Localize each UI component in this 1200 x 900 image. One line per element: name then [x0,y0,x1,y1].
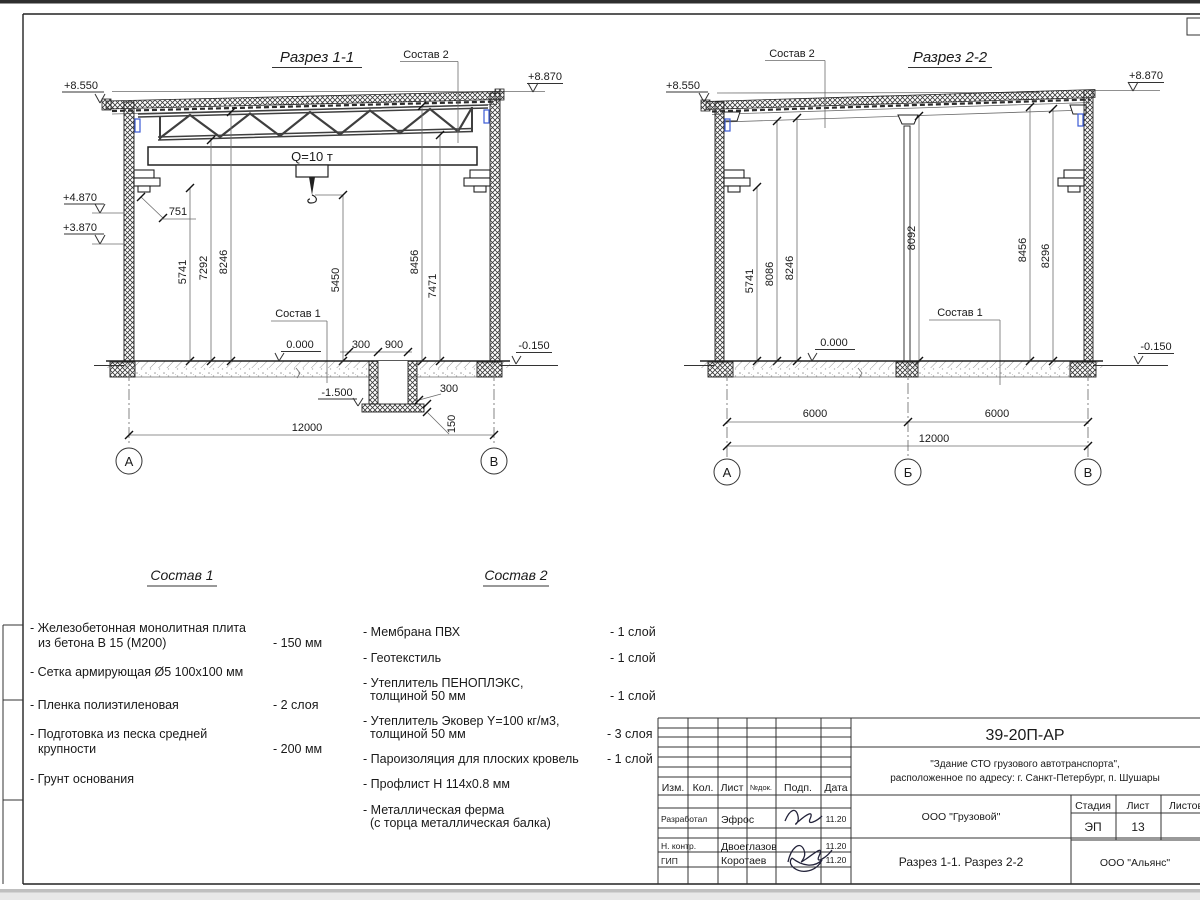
row-name: Эфрос [721,814,754,826]
spec-line: - Утеплитель ПЕНОПЛЭКС, [363,676,523,690]
callout-sostav2: Состав 2 [769,48,815,60]
sheet-label: Лист [1127,800,1150,812]
dim-pit-300b: 300 [440,383,458,395]
client-name: ООО "Грузовой" [922,811,1001,823]
dim-8456: 8456 [409,250,421,274]
inspection-pit [362,361,424,412]
col-ndok: №док. [750,783,772,792]
elev-0000: 0.000 [286,339,314,351]
col-podp: Подп. [784,782,812,794]
spec-value: - 200 мм [273,742,322,756]
project-object-line2: расположенное по адресу: г. Санкт-Петерб… [890,772,1160,784]
spec-line: толщиной 50 мм [370,727,466,741]
spec-line: (с торца металлическая балка) [370,816,551,830]
col-izm: Изм. [662,782,685,794]
row-date: 11.20 [826,841,847,851]
spec-line: - Железобетонная монолитная плита [30,621,246,635]
sostav2-title: Состав 2 [484,567,547,583]
spec-value: - 2 слоя [273,698,318,712]
elev-minus-1500: -1.500 [321,387,352,399]
stage-label: Стадия [1075,800,1111,812]
dim-pit-300a: 300 [352,339,370,351]
crane-capacity-label: Q=10 т [291,149,333,164]
elev-8870: +8.870 [528,71,562,83]
spec-line: толщиной 50 мм [370,689,466,703]
row-name: Коротаев [721,855,767,867]
dim-pit-900: 900 [385,339,403,351]
dim-8246: 8246 [218,250,230,274]
spec-line: из бетона В 15 (М200) [38,636,166,650]
stage-value: ЭП [1084,820,1101,834]
callout-sostav1: Состав 1 [937,307,983,319]
section2-title: Разрез 2-2 [913,49,988,66]
dim-pit-150: 150 [446,415,458,433]
drawing-sheet: Разрез 1-1 Q=10 т [0,0,1200,900]
spec-line: - Сетка армирующая Ø5 100х100 мм [30,665,243,679]
dim-8086: 8086 [764,262,776,286]
elev-0000: 0.000 [820,337,848,349]
project-code: 39-20П-АР [985,727,1064,744]
crane-trolley [296,165,328,177]
sostav1-title: Состав 1 [150,567,213,583]
company-name: ООО "Альянс" [1100,857,1170,869]
spec-line: - Подготовка из песка средней [30,727,207,741]
dim-6000-left: 6000 [803,408,827,420]
foundation-left [110,362,135,377]
axis-label-b: Б [904,465,913,480]
floor-slab-2-2 [684,361,1168,378]
spec-line: - Геотекстиль [363,651,441,665]
spec-value: - 1 слой [610,651,656,665]
cad-canvas: Разрез 1-1 Q=10 т [0,0,1200,900]
dim-7471: 7471 [427,274,439,298]
floor-slab-1-1 [94,361,558,378]
sheet-number: 13 [1131,820,1145,834]
col-kol: Кол. [693,782,714,794]
axis-label-v: В [1084,465,1093,480]
callout-sostav1: Состав 1 [275,308,321,320]
sheet-title: Разрез 1-1. Разрез 2-2 [899,855,1024,869]
dim-8246: 8246 [784,256,796,280]
foundation-right [477,362,502,377]
row-role: Разработал [661,814,707,824]
elev-3870: +3.870 [63,222,97,234]
elev-8870: +8.870 [1129,70,1163,82]
dim-5741: 5741 [744,269,756,293]
row-date: 11.20 [826,814,847,824]
spec-line: - Мембрана ПВХ [363,625,461,639]
spec-value: - 3 слоя [607,727,652,741]
dim-8296: 8296 [1040,244,1052,268]
spec-line: крупности [38,742,96,756]
dim-7292: 7292 [198,256,210,280]
dim-12000: 12000 [919,433,950,445]
elev-4870: +4.870 [63,192,97,204]
col-data: Дата [824,782,847,794]
row-role: ГИП [661,856,678,866]
spec-line: - Пароизоляция для плоских кровель [363,752,579,766]
spec-value: - 150 мм [273,636,322,650]
row-role: Н. контр. [661,841,696,851]
spec-value: - 1 слой [610,625,656,639]
dim-8092: 8092 [906,226,918,250]
sheets-label: Листов [1169,800,1200,812]
dim-5450: 5450 [330,268,342,292]
elev-8550: +8.550 [64,80,98,92]
dim-12000: 12000 [292,422,323,434]
spec-line: - Металлическая ферма [363,803,504,817]
row-name: Двоеглазов [721,841,777,853]
col-list: Лист [721,782,744,794]
elev-minus-0150: -0.150 [518,340,549,352]
project-object-line1: "Здание СТО грузового автотранспорта", [930,759,1120,770]
spec-line: - Профлист Н 114х0.8 мм [363,777,510,791]
row-date: 11.20 [826,855,847,865]
dim-8456: 8456 [1017,238,1029,262]
dim-5741: 5741 [177,260,189,284]
section1-title: Разрез 1-1 [280,49,354,66]
spec-line: - Утеплитель Эковер Y=100 кг/м3, [363,714,559,728]
dim-6000-right: 6000 [985,408,1009,420]
spec-line: - Пленка полиэтиленовая [30,698,179,712]
axis-label-a: А [125,454,134,469]
elev-minus-0150: -0.150 [1140,341,1171,353]
callout-sostav2: Состав 2 [403,49,449,61]
axis-label-a: А [723,465,732,480]
spec-value: - 1 слой [610,689,656,703]
dim-751-text: 751 [169,206,187,218]
elev-8550: +8.550 [666,80,700,92]
spec-line: - Грунт основания [30,772,134,786]
spec-value: - 1 слой [607,752,653,766]
axis-label-b: В [490,454,499,469]
